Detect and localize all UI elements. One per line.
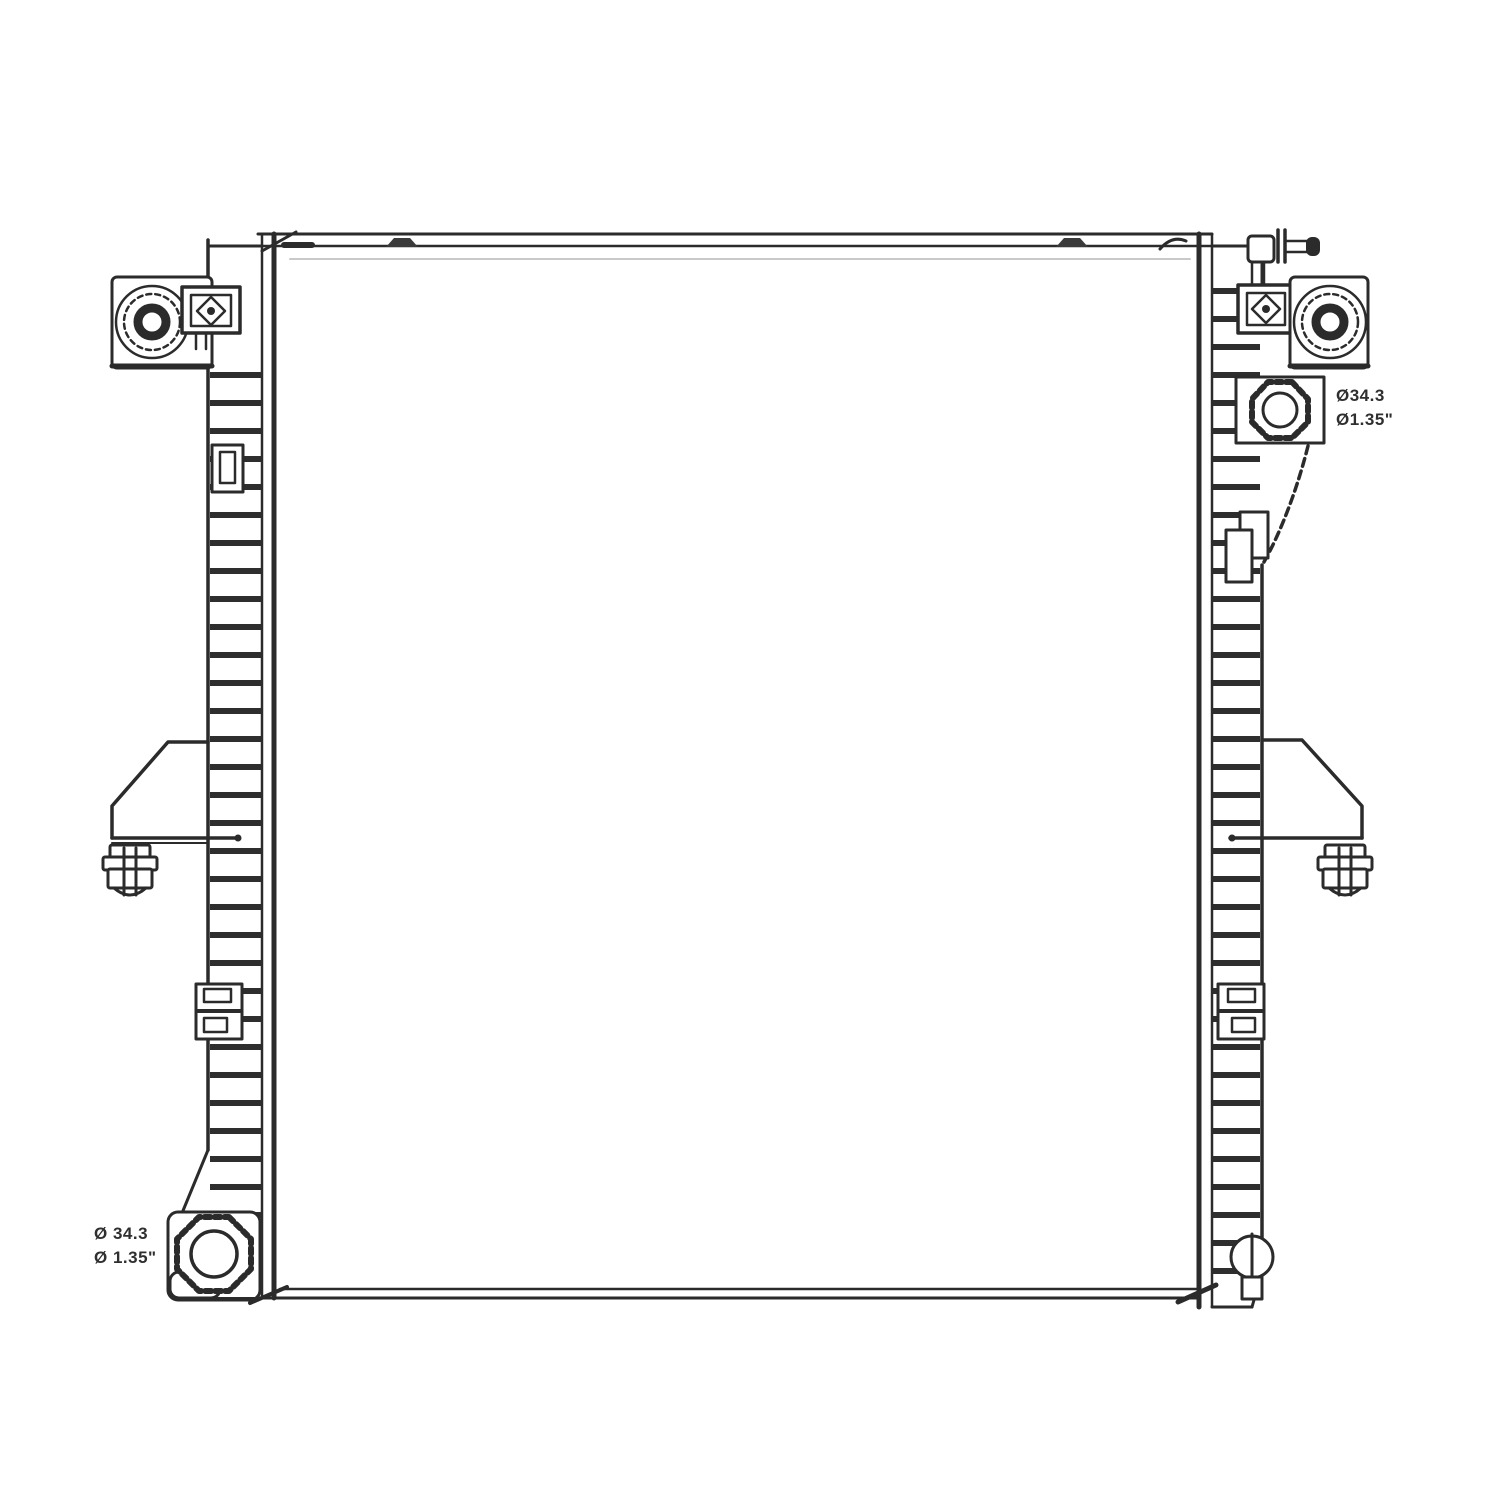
left-tank-ribs bbox=[210, 372, 262, 1285]
drain-plug bbox=[1231, 1234, 1273, 1299]
inlet-diameter-inch: Ø1.35" bbox=[1336, 408, 1393, 432]
bolt bbox=[103, 845, 157, 895]
outlet-port bbox=[168, 1212, 260, 1300]
top-rail-clip-left bbox=[386, 238, 418, 247]
top-rail-clip-right bbox=[1056, 238, 1088, 247]
bolt bbox=[1318, 845, 1372, 895]
outlet-diameter-annotation: Ø 34.3 Ø 1.35" bbox=[94, 1222, 157, 1270]
core-top-rail bbox=[250, 232, 1212, 259]
core-right-edge bbox=[1199, 234, 1212, 1307]
core-bottom-rail bbox=[250, 1285, 1216, 1303]
outlet-diameter-inch: Ø 1.35" bbox=[94, 1246, 157, 1270]
core-left-edge bbox=[262, 234, 274, 1298]
inlet-diameter-annotation: Ø34.3 Ø1.35" bbox=[1336, 384, 1393, 432]
mounting-bracket-top-left bbox=[112, 277, 240, 368]
left-tank-clip-upper bbox=[212, 445, 243, 492]
outlet-diameter-mm: Ø 34.3 bbox=[94, 1222, 157, 1246]
radiator-line-drawing bbox=[0, 0, 1500, 1500]
radiator-technical-drawing-page: Ø34.3 Ø1.35" Ø 34.3 Ø 1.35" bbox=[0, 0, 1500, 1500]
inlet-port bbox=[1236, 377, 1324, 443]
left-tank-clip-lower bbox=[196, 984, 242, 1039]
inlet-diameter-mm: Ø34.3 bbox=[1336, 384, 1393, 408]
right-tank-clip-lower bbox=[1218, 984, 1264, 1039]
